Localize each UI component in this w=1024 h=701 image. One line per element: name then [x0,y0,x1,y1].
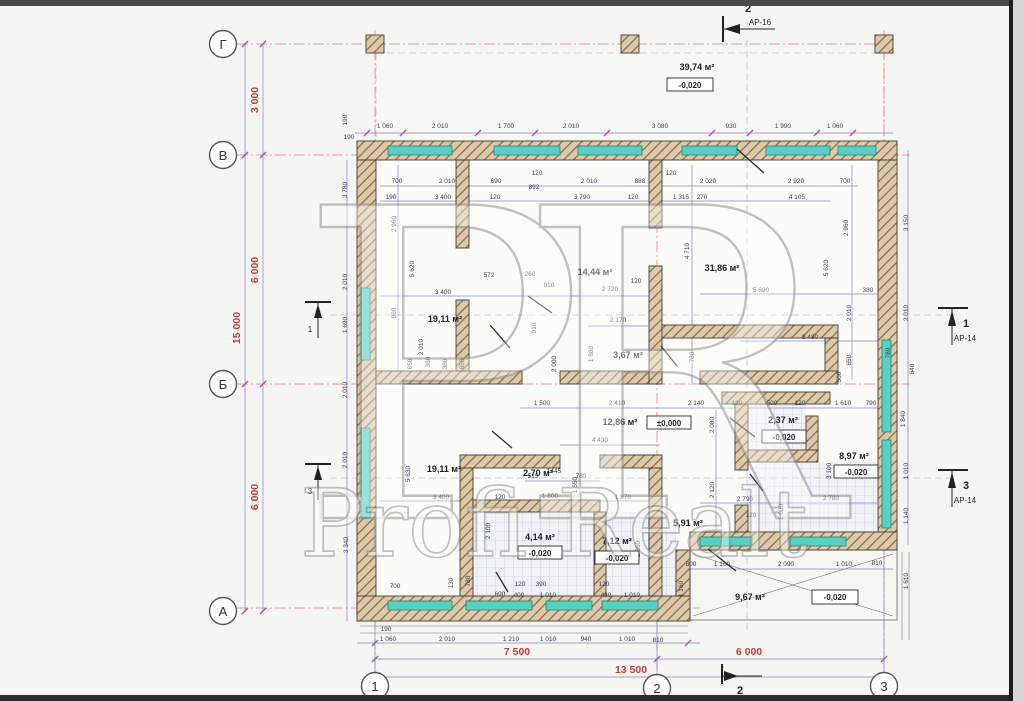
dimension-label: 1 140 [903,507,910,524]
elevation-terrace: -0,020 [824,593,847,602]
dimension-label: 1 060 [380,636,397,643]
room-label-bath-right: 8,97 м² [839,451,869,461]
dimension-label: 1 840 [900,410,907,427]
dimension-label: 500 [836,371,843,382]
dimension-label: 380 [863,287,874,294]
section-top-sheet: АР-16 [749,18,772,27]
dimension-label: 190 [381,626,392,633]
axis-label-a: А [219,604,228,619]
axis-dim-13500: 13 500 [615,664,647,676]
axis-dim-6000-bottom: 6 000 [736,646,762,658]
dimension-label: 1 010 [903,462,910,479]
dimension-label: 2 010 [846,304,853,321]
dimension-label: 1 010 [540,636,557,643]
axis-label-1: 1 [371,679,378,694]
dimension-label: 1 990 [775,123,792,130]
elevation-bath-right: -0,020 [845,468,868,477]
elevation-porch: -0,020 [679,81,702,90]
watermark: PR Profi Realt [297,120,852,620]
dimension-label: 810 [872,560,883,567]
axis-label-3: 3 [880,679,887,694]
elevation-lobby: -0,020 [773,433,796,442]
dimension-label: 1 610 [835,400,852,407]
dimension-label: 3 150 [903,214,910,231]
dimension-label: 1 210 [503,636,520,643]
watermark-text: Profi Realt [300,470,808,579]
room-label-porch: 39,74 м² [680,62,715,72]
dimension-label: 2 780 [823,495,840,502]
axis-dim-7500: 7 500 [504,646,530,658]
axis-dim-6000-upper: 6 000 [249,257,261,283]
dimension-label: 650 [846,354,853,365]
floor-plan-photo: 1901 0602 0101 7002 0103 0809301 9901 06… [0,0,1024,701]
section-right-lower-sheet: АР-14 [954,496,977,505]
dimension-label: 780 [885,347,892,358]
floor-plan-drawing: 1901 0602 0101 7002 0103 0809301 9901 06… [0,0,1024,701]
dimension-label: 2 960 [843,219,850,236]
dimension-label: 1 060 [827,123,844,130]
dimension-label: 1 010 [619,636,636,643]
dimension-label: 810 [653,637,664,644]
dimension-label: 2 920 [788,178,805,185]
dimension-label: 3 430 [802,334,819,341]
dimension-label: 1 610 [903,572,910,589]
dimension-label: 5 620 [823,259,830,276]
dimension-label: 3 100 [826,462,833,479]
dimension-label: 1 010 [836,561,853,568]
dimension-label: 4 105 [789,194,806,201]
axis-label-b: Б [219,377,228,392]
section-right-lower-number: 3 [963,480,969,492]
dimension-label: 940 [581,636,592,643]
axis-dim-3000: 3 000 [249,87,261,113]
dimension-label: 2 010 [903,304,910,321]
section-right-upper-number: 1 [963,318,969,330]
dimension-label: 790 [866,400,877,407]
axis-label-g: Г [219,37,226,52]
axis-dim-6000-lower: 6 000 [249,484,261,510]
axis-label-2: 2 [653,681,660,696]
dimension-label: 640 [909,363,916,374]
dimension-label: 2 010 [439,636,456,643]
dimension-label: 700 [840,178,851,185]
axis-label-v: В [219,148,228,163]
section-right-upper-sheet: АР-14 [954,334,977,343]
room-label-lobby: 2,37 м² [768,415,798,425]
dimension-label: 120 [795,400,806,407]
axis-dim-15000: 15 000 [231,312,243,344]
